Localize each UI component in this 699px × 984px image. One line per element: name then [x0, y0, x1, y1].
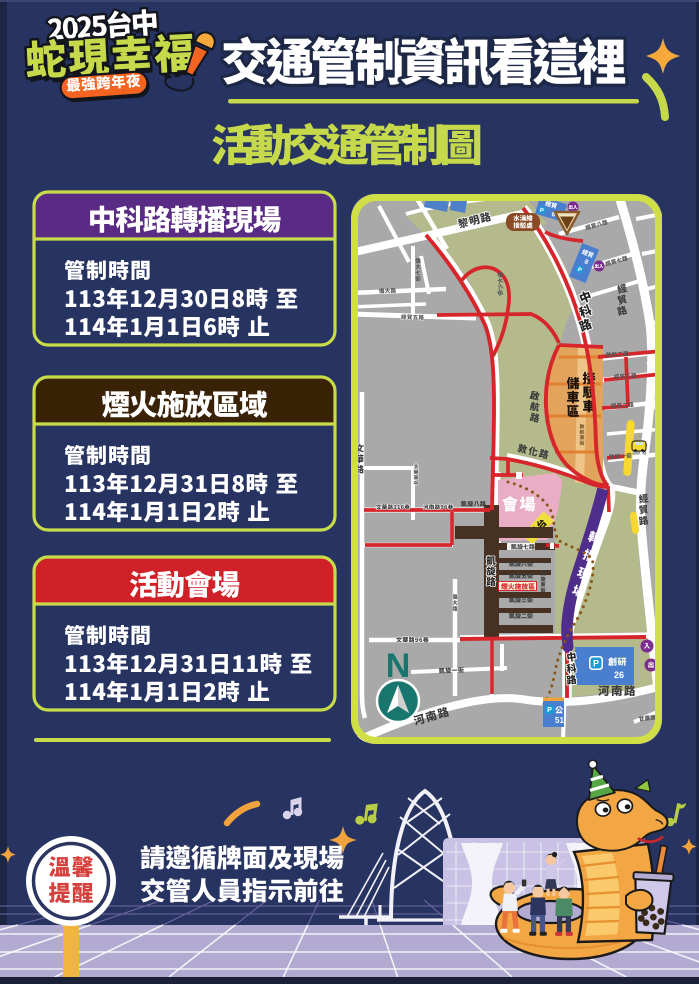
svg-text:P: P	[547, 707, 552, 714]
svg-text:P: P	[593, 659, 599, 669]
svg-text:51: 51	[555, 716, 564, 725]
svg-text:26: 26	[614, 670, 624, 680]
